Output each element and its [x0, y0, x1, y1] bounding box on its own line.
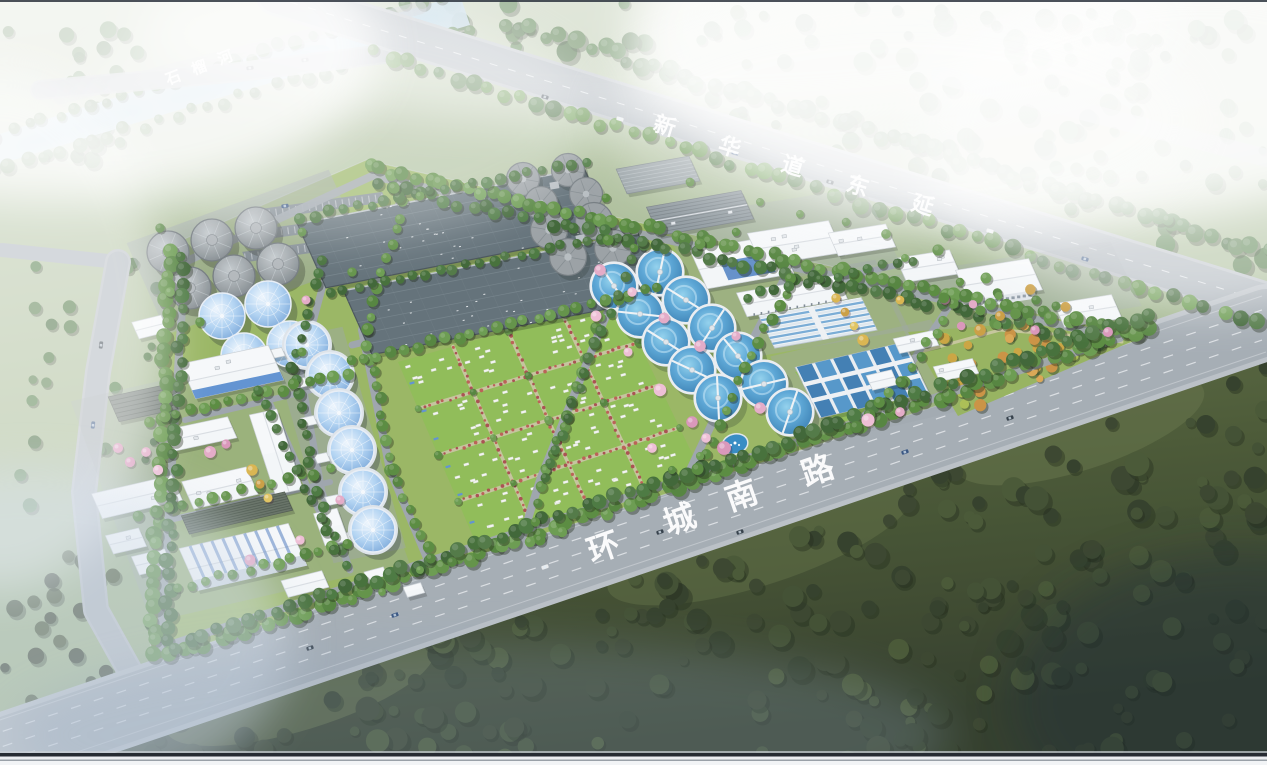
treatment-plant-aerial-rendering: 石 榴 河 新 华 道 东 延 环 城 南 路 — [0, 0, 1267, 765]
aerial-rendering-viewport: 石 榴 河 新 华 道 东 延 环 城 南 路 — [0, 0, 1267, 765]
atmospheric-haze — [0, 0, 1267, 765]
